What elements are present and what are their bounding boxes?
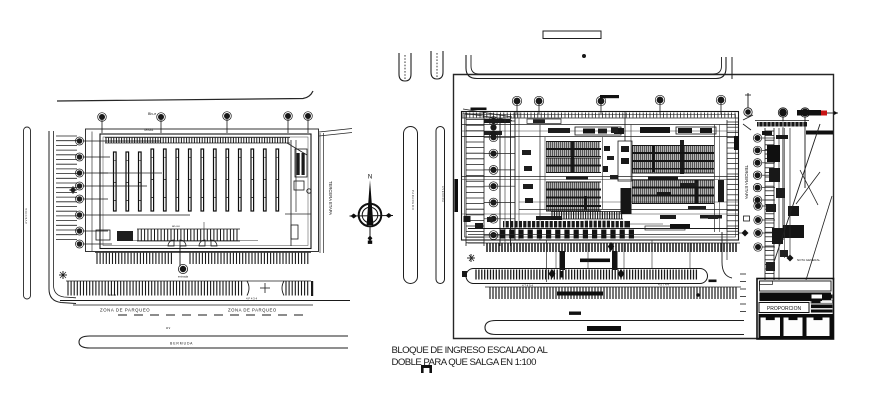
svg-text:ZONA DE PARQUEO: ZONA DE PARQUEO: [228, 308, 277, 313]
svg-text:Blv-e: Blv-e: [148, 112, 156, 116]
svg-text:A V E N I D A: A V E N I D A: [441, 186, 445, 202]
svg-text:P A R A D E R O: P A R A D E R O: [411, 190, 415, 210]
svg-text:entrada: entrada: [178, 275, 189, 279]
svg-text:DOBLE PARA QUE SALGA EN 1:100: DOBLE PARA QUE SALGA EN 1:100: [392, 357, 537, 368]
svg-text:4 F 4 3 4: 4 F 4 3 4: [246, 297, 257, 301]
svg-text:BLOQUE DE INGRESO ESCALADO AL: BLOQUE DE INGRESO ESCALADO AL: [392, 345, 549, 356]
svg-text:TERCERA ETAPA: TERCERA ETAPA: [328, 181, 333, 215]
svg-text:4 5 7 4 4: 4 5 7 4 4: [658, 283, 669, 287]
svg-text:4FA34: 4FA34: [108, 293, 117, 297]
svg-text:TERCERA ETAPA: TERCERA ETAPA: [744, 165, 749, 199]
svg-text:A V E N I D A: A V E N I D A: [24, 208, 28, 224]
svg-text:a v: a v: [166, 326, 171, 330]
svg-text:B E R M U D A: B E R M U D A: [170, 342, 193, 346]
svg-text:ZONA DE PARQUEO: ZONA DE PARQUEO: [100, 308, 150, 313]
svg-text:NOTA GENERAL: NOTA GENERAL: [797, 258, 820, 262]
svg-text:N: N: [368, 175, 372, 181]
svg-text:an-su: an-su: [172, 224, 180, 228]
svg-text:4FA34: 4FA34: [144, 128, 153, 132]
svg-text:PROPORCION: PROPORCION: [767, 306, 802, 312]
